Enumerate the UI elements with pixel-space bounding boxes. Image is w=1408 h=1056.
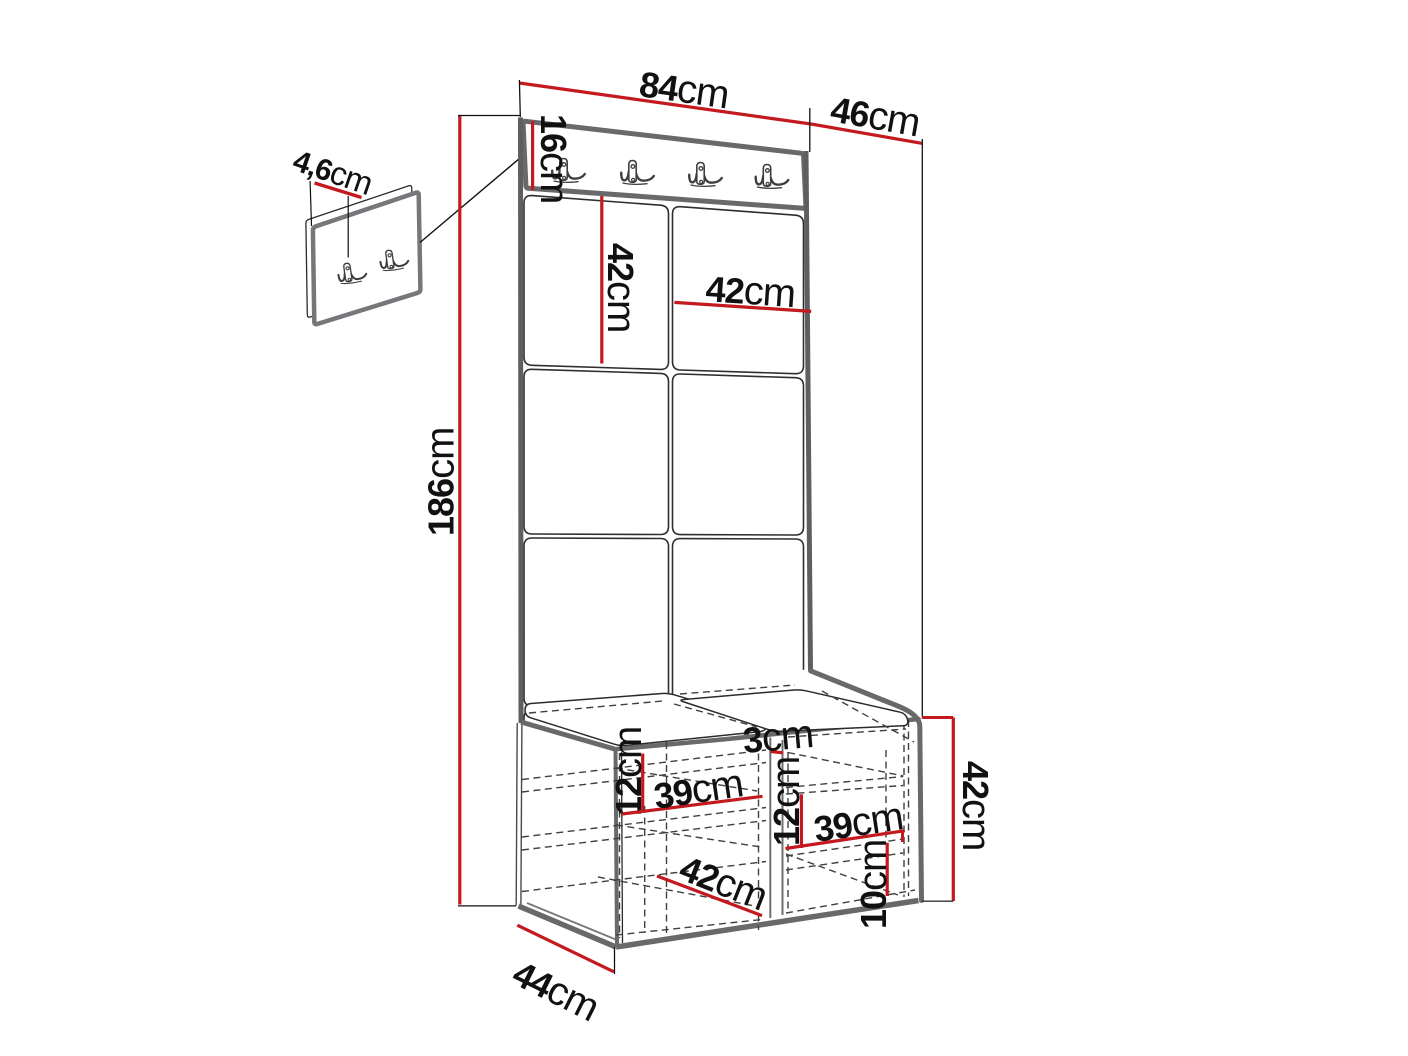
svg-text:12cm: 12cm xyxy=(606,727,650,816)
svg-text:42cm: 42cm xyxy=(704,266,796,316)
svg-text:42cm: 42cm xyxy=(599,243,643,332)
svg-text:186cm: 186cm xyxy=(419,428,463,536)
svg-text:3cm: 3cm xyxy=(741,712,815,762)
svg-text:16cm: 16cm xyxy=(532,114,576,203)
svg-text:12cm: 12cm xyxy=(764,757,808,846)
svg-text:42cm: 42cm xyxy=(954,761,998,850)
svg-text:10cm: 10cm xyxy=(851,840,895,929)
